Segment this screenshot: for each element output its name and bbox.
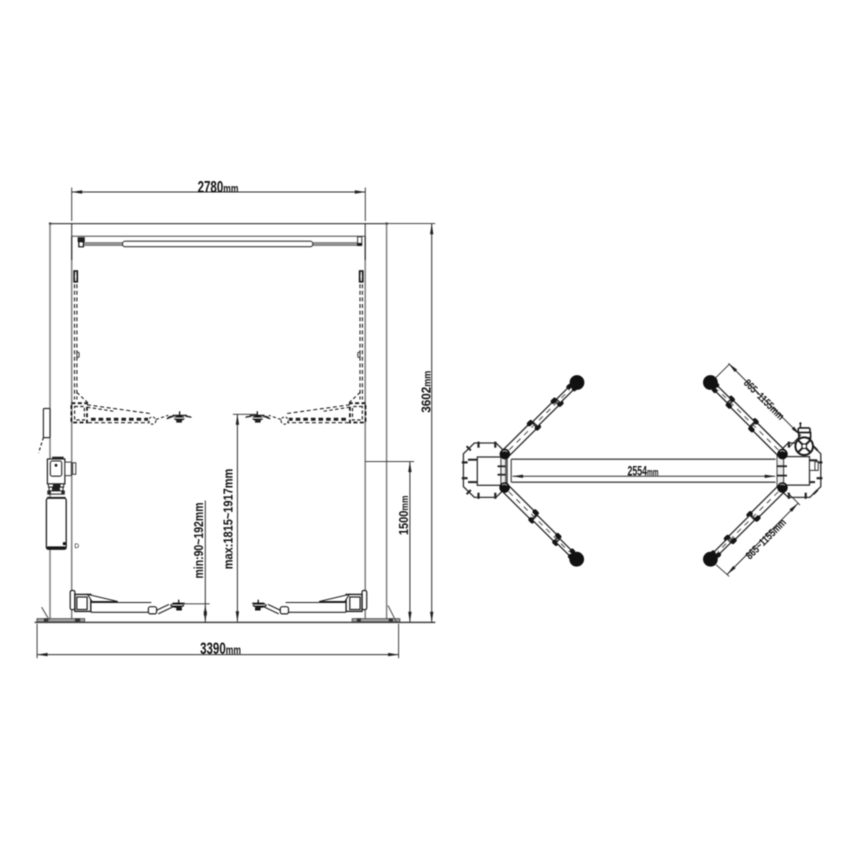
svg-text:max:1815~1917mm: max:1815~1917mm: [222, 469, 236, 570]
svg-text:D: D: [74, 543, 79, 550]
svg-text:min:90~192mm: min:90~192mm: [193, 502, 206, 578]
svg-text:1500mm: 1500mm: [396, 495, 411, 535]
svg-text:2780mm: 2780mm: [198, 179, 239, 198]
svg-text:3390mm: 3390mm: [200, 640, 241, 659]
svg-text:2554mm: 2554mm: [627, 465, 658, 479]
svg-text:3602mm: 3602mm: [419, 371, 434, 413]
